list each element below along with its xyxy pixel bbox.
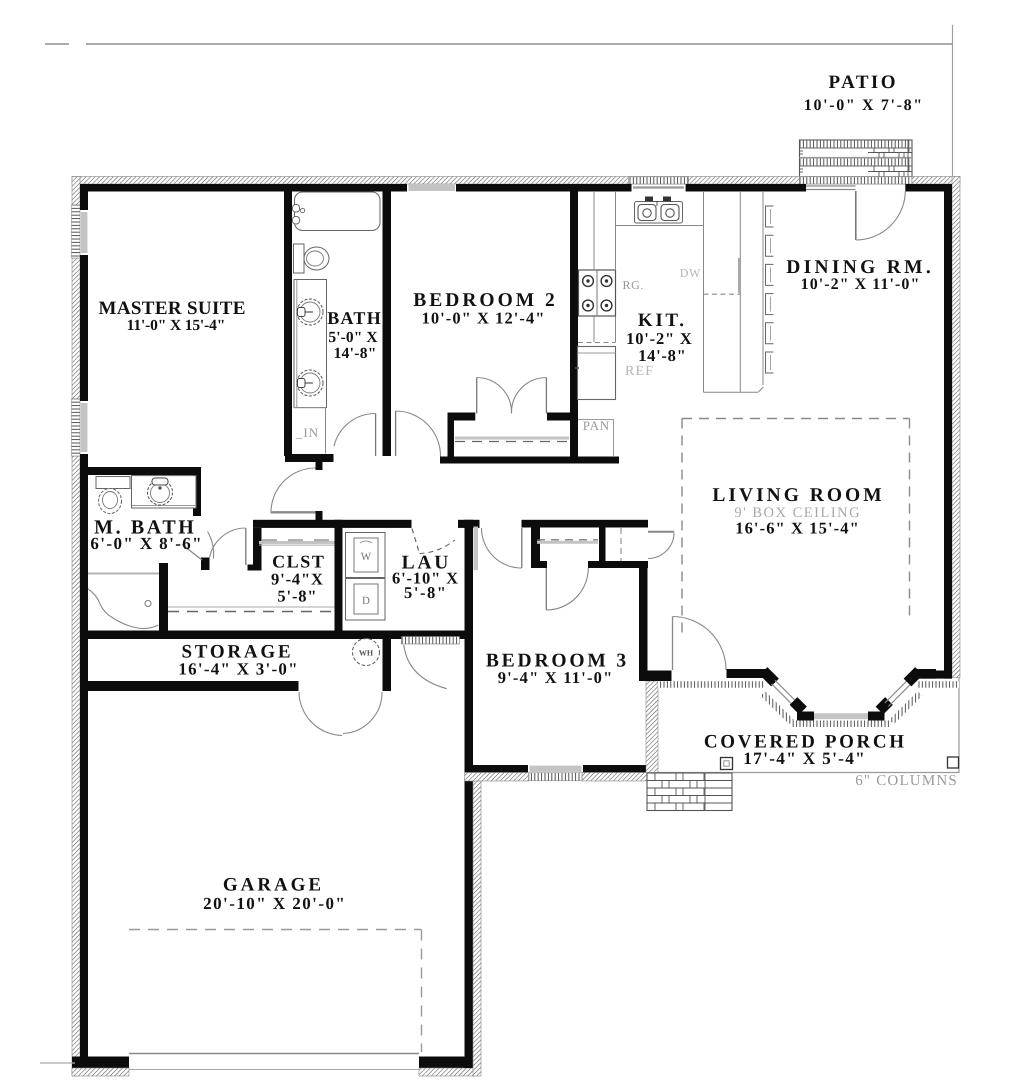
svg-text:6" COLUMNS: 6" COLUMNS [855, 773, 958, 789]
svg-text:W: W [361, 551, 372, 563]
svg-text:D: D [362, 595, 370, 607]
svg-text:GARAGE: GARAGE [223, 875, 324, 896]
svg-text:20'-10" X 20'-0": 20'-10" X 20'-0" [203, 894, 346, 913]
svg-text:BATH: BATH [327, 308, 382, 328]
svg-text:PAN: PAN [583, 418, 610, 433]
svg-text:9'-4" X 11'-0": 9'-4" X 11'-0" [498, 668, 614, 687]
svg-text:14'-8": 14'-8" [638, 346, 686, 365]
svg-text:5'-8": 5'-8" [404, 583, 448, 602]
svg-text:MASTER SUITE: MASTER SUITE [99, 298, 246, 319]
svg-text:RG.: RG. [623, 278, 644, 292]
svg-text:_IN: _IN [295, 425, 319, 440]
svg-text:6'-0" X 8'-6": 6'-0" X 8'-6" [90, 534, 203, 553]
svg-text:17'-4" X 5'-4": 17'-4" X 5'-4" [743, 749, 866, 768]
svg-text:WH: WH [359, 649, 374, 658]
svg-text:KIT.: KIT. [638, 310, 687, 331]
svg-text:DINING RM.: DINING RM. [786, 257, 934, 278]
svg-text:10'-0" X 7'-8": 10'-0" X 7'-8" [804, 97, 924, 114]
svg-text:10'-2" X 11'-0": 10'-2" X 11'-0" [801, 276, 921, 293]
svg-text:CLST: CLST [272, 552, 325, 572]
svg-text:10'-0" X 12'-4": 10'-0" X 12'-4" [422, 309, 546, 328]
svg-text:16'-6" X 15'-4": 16'-6" X 15'-4" [735, 519, 860, 538]
svg-text:5'-0" X: 5'-0" X [328, 329, 378, 346]
svg-text:PATIO: PATIO [829, 72, 898, 93]
svg-text:14'-8": 14'-8" [334, 345, 377, 362]
svg-text:DW: DW [680, 266, 701, 280]
svg-text:LIVING ROOM: LIVING ROOM [712, 485, 884, 506]
svg-text:16'-4" X 3'-0": 16'-4" X 3'-0" [178, 660, 298, 679]
svg-text:5'-8": 5'-8" [277, 587, 317, 606]
svg-text:11'-0" X 15'-4": 11'-0" X 15'-4" [127, 317, 226, 334]
svg-text:REF: REF [625, 364, 654, 379]
